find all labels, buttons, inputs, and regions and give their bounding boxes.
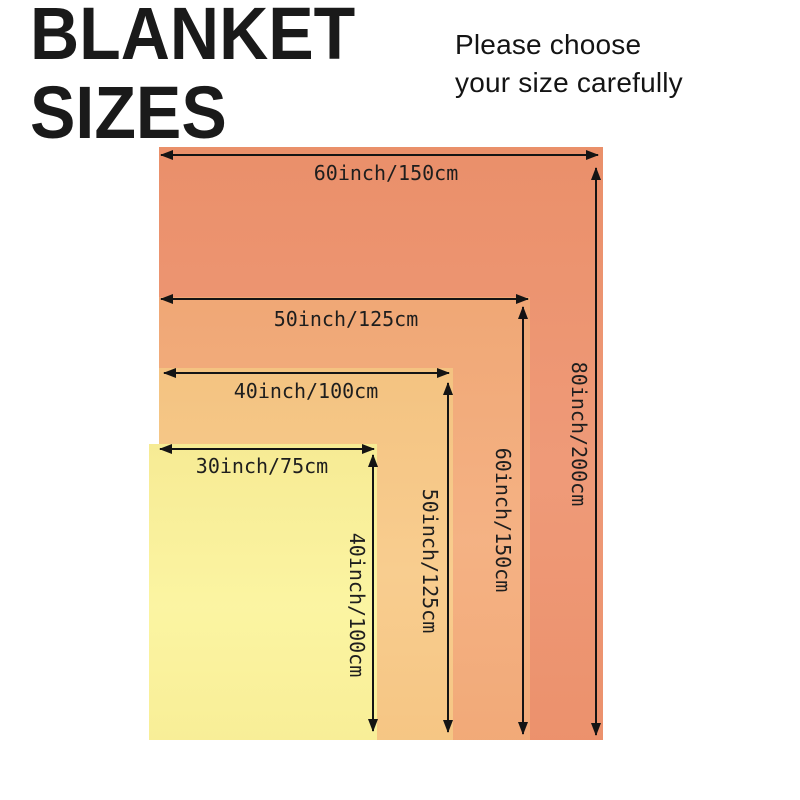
choose-size-note-line2: your size carefully — [455, 64, 683, 102]
page-title-line2: SIZES — [30, 73, 355, 152]
width-label-50x60: 50inch/125cm — [274, 307, 419, 331]
choose-size-note: Please choose your size carefully — [455, 26, 683, 102]
height-label-50x60: 60inch/150cm — [491, 448, 515, 593]
height-arrow-50x60 — [522, 307, 524, 734]
page-title-line1: BLANKET — [30, 0, 355, 73]
width-arrow-60x80 — [161, 154, 598, 156]
height-label-40x50: 50inch/125cm — [418, 489, 442, 634]
blanket-rect-30x40 — [149, 444, 377, 740]
height-arrow-40x50 — [447, 383, 449, 732]
page-title: BLANKET SIZES — [30, 0, 355, 152]
width-arrow-50x60 — [161, 298, 528, 300]
height-label-30x40: 40inch/100cm — [345, 533, 369, 678]
width-label-40x50: 40inch/100cm — [234, 379, 379, 403]
height-label-60x80: 80inch/200cm — [567, 362, 591, 507]
choose-size-note-line1: Please choose — [455, 26, 683, 64]
width-label-60x80: 60inch/150cm — [314, 161, 459, 185]
height-arrow-60x80 — [595, 168, 597, 735]
blanket-size-chart: BLANKET SIZES Please choose your size ca… — [0, 0, 800, 800]
width-label-30x40: 30inch/75cm — [196, 454, 328, 478]
height-arrow-30x40 — [372, 455, 374, 731]
width-arrow-40x50 — [164, 372, 449, 374]
width-arrow-30x40 — [160, 448, 374, 450]
